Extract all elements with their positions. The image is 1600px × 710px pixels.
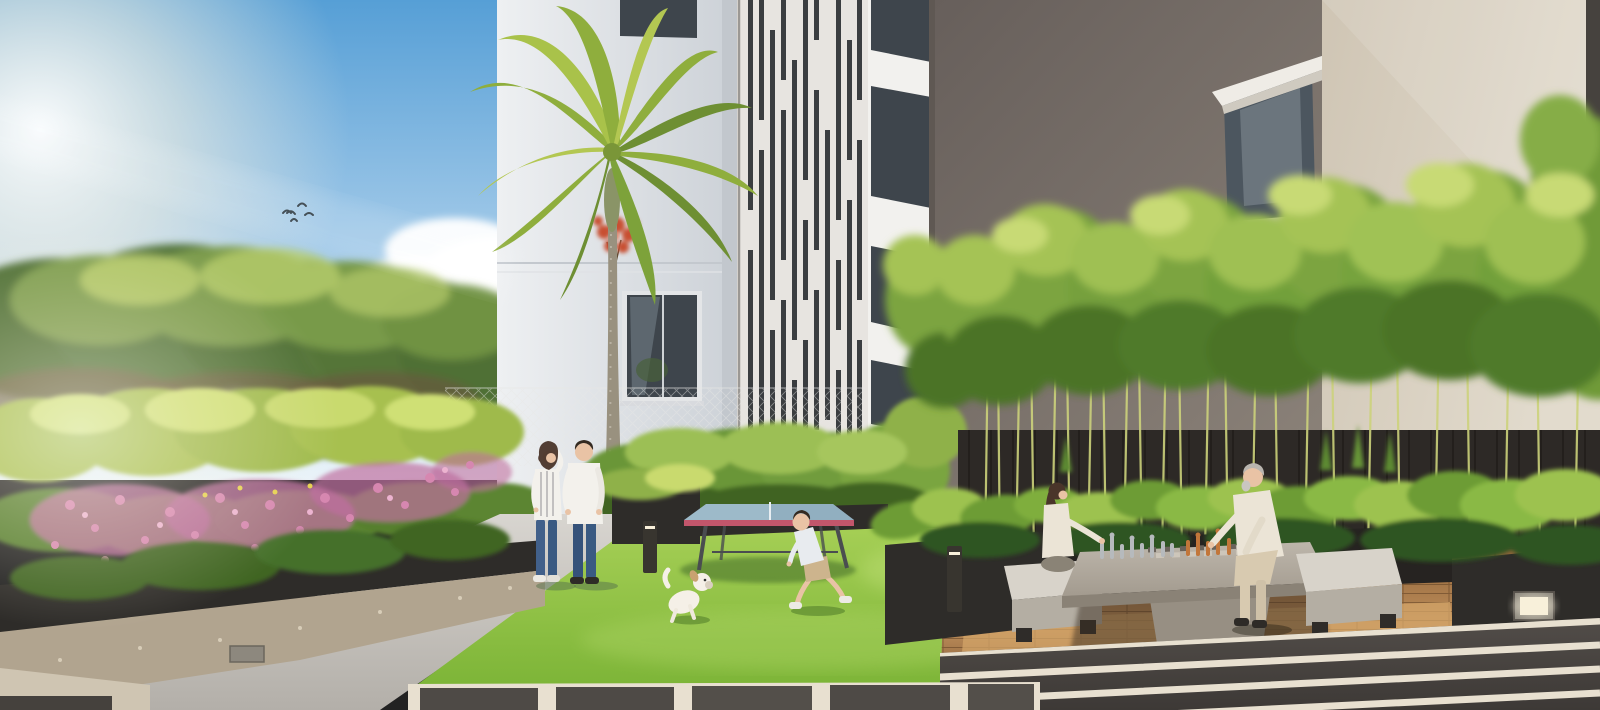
render-canvas — [0, 0, 1600, 710]
bollard-light — [947, 546, 962, 612]
giant-chess-table — [1062, 529, 1330, 653]
paver-walkway — [408, 682, 1040, 710]
step-light — [230, 646, 264, 662]
courtyard-render — [0, 0, 1600, 710]
bollard-light — [643, 521, 657, 573]
